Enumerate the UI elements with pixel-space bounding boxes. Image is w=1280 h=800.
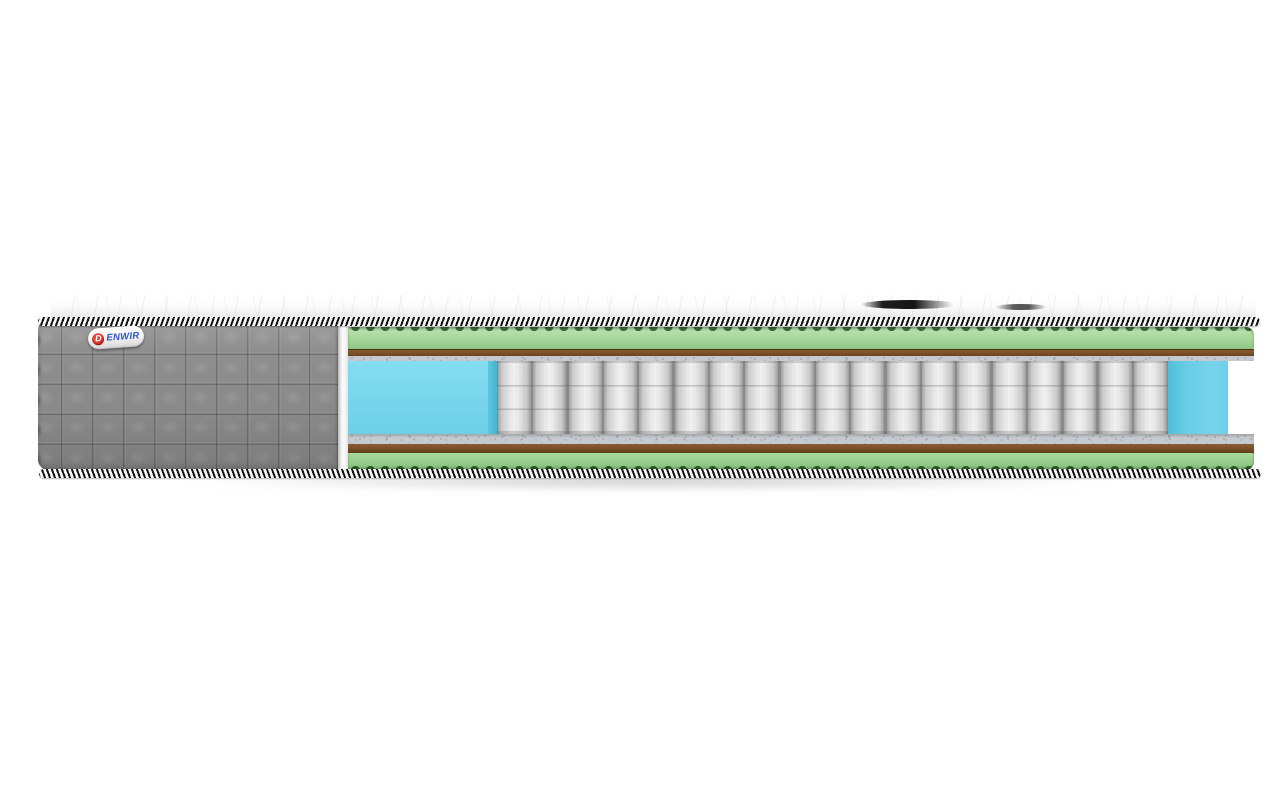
pocket-spring-coil bbox=[498, 361, 531, 434]
pocket-spring-coil bbox=[533, 361, 566, 434]
cover-cut-edge bbox=[338, 320, 348, 470]
pocket-spring-coil bbox=[1064, 361, 1097, 434]
handle-shadow-left bbox=[861, 300, 958, 309]
product-photo-mattress-cutaway: D ENWIR bbox=[0, 0, 1280, 800]
pocket-spring-coil bbox=[1028, 361, 1061, 434]
pocket-spring-coil bbox=[957, 361, 990, 434]
pocket-spring-coil bbox=[851, 361, 884, 434]
binding-tape-top bbox=[38, 317, 1260, 326]
brand-name: ENWIR bbox=[106, 330, 140, 343]
pocket-spring-coil bbox=[745, 361, 778, 434]
pocket-spring-coil bbox=[604, 361, 637, 434]
brand-logo-d-icon: D bbox=[92, 332, 105, 345]
pocket-springs bbox=[497, 361, 1168, 434]
cross-section bbox=[348, 327, 1254, 470]
pocket-spring-coil bbox=[1099, 361, 1132, 434]
side-support-foam-left bbox=[348, 361, 497, 434]
pocket-spring-coil bbox=[781, 361, 814, 434]
pocket-spring-coil bbox=[569, 361, 602, 434]
handle-shadow-right bbox=[995, 304, 1047, 310]
pocket-spring-coil bbox=[675, 361, 708, 434]
cover-side-quilted-panel bbox=[38, 318, 338, 471]
pocket-spring-coil bbox=[639, 361, 672, 434]
side-support-foam-right bbox=[1168, 361, 1228, 434]
layer-eggcrate-foam-bottom bbox=[348, 453, 1254, 470]
pocket-spring-coil bbox=[922, 361, 955, 434]
spring-core-band bbox=[348, 361, 1228, 434]
pocket-spring-coil bbox=[710, 361, 743, 434]
binding-tape-bottom bbox=[39, 469, 1261, 478]
mattress: D ENWIR bbox=[38, 293, 1262, 498]
layer-eggcrate-foam-top bbox=[348, 327, 1254, 349]
pocket-spring-coil bbox=[816, 361, 849, 434]
pocket-spring-coil bbox=[1134, 361, 1167, 434]
pocket-spring-coil bbox=[993, 361, 1026, 434]
layer-spunbond-bottom bbox=[348, 434, 1254, 444]
pocket-spring-coil bbox=[887, 361, 920, 434]
brand-tag: D ENWIR bbox=[87, 325, 144, 350]
cover-left-scalloped-edge bbox=[38, 318, 47, 471]
